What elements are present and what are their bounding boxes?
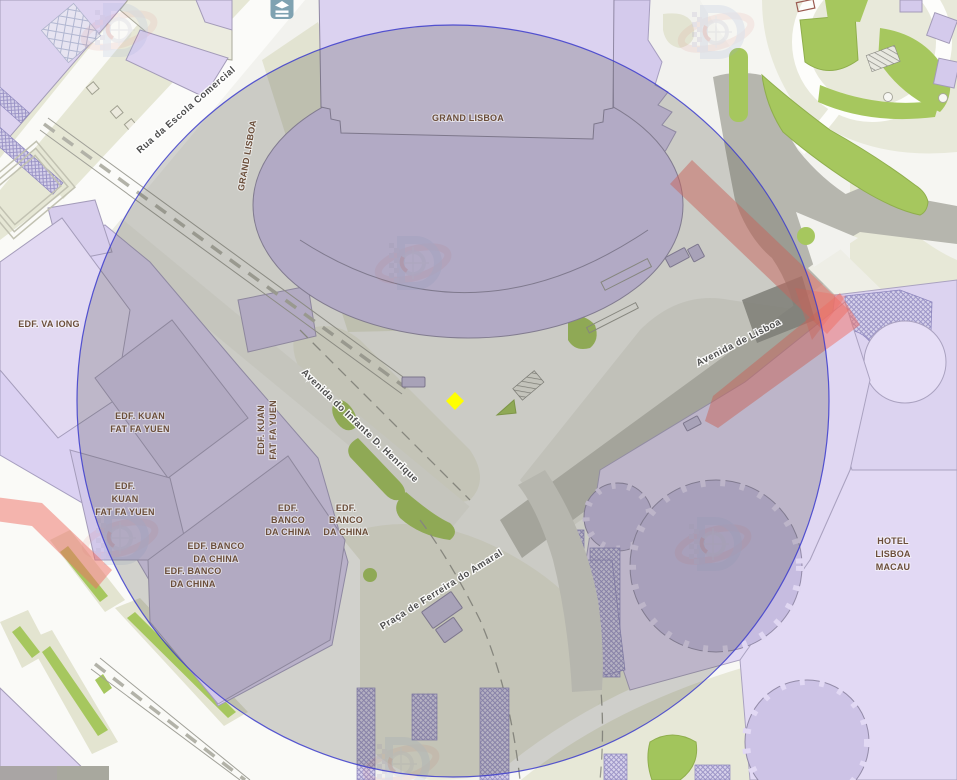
svg-text:HOTEL: HOTEL (877, 536, 909, 546)
svg-text:FAT FA YUEN: FAT FA YUEN (110, 424, 170, 434)
svg-text:EDF. BANCO: EDF. BANCO (164, 566, 221, 576)
svg-text:DA CHINA: DA CHINA (170, 579, 216, 589)
svg-text:FAT FA YUEN: FAT FA YUEN (268, 400, 278, 460)
svg-text:LISBOA: LISBOA (875, 549, 911, 559)
svg-text:EDF.: EDF. (278, 503, 298, 513)
svg-text:KUAN: KUAN (112, 494, 139, 504)
svg-text:BANCO: BANCO (271, 515, 305, 525)
svg-text:DA CHINA: DA CHINA (265, 527, 311, 537)
svg-text:DA CHINA: DA CHINA (323, 527, 369, 537)
svg-text:EDF.: EDF. (336, 503, 356, 513)
svg-text:EDF. KUAN: EDF. KUAN (115, 411, 165, 421)
svg-text:EDF. VA IONG: EDF. VA IONG (18, 319, 79, 329)
svg-text:FAT FA YUEN: FAT FA YUEN (95, 507, 155, 517)
svg-text:MACAU: MACAU (876, 562, 911, 572)
svg-text:GRAND LISBOA: GRAND LISBOA (432, 113, 504, 123)
svg-text:EDF. KUAN: EDF. KUAN (256, 405, 266, 455)
svg-text:EDF.: EDF. (115, 481, 135, 491)
svg-text:EDF. BANCO: EDF. BANCO (187, 541, 244, 551)
svg-text:BANCO: BANCO (329, 515, 363, 525)
svg-text:DA CHINA: DA CHINA (193, 554, 239, 564)
